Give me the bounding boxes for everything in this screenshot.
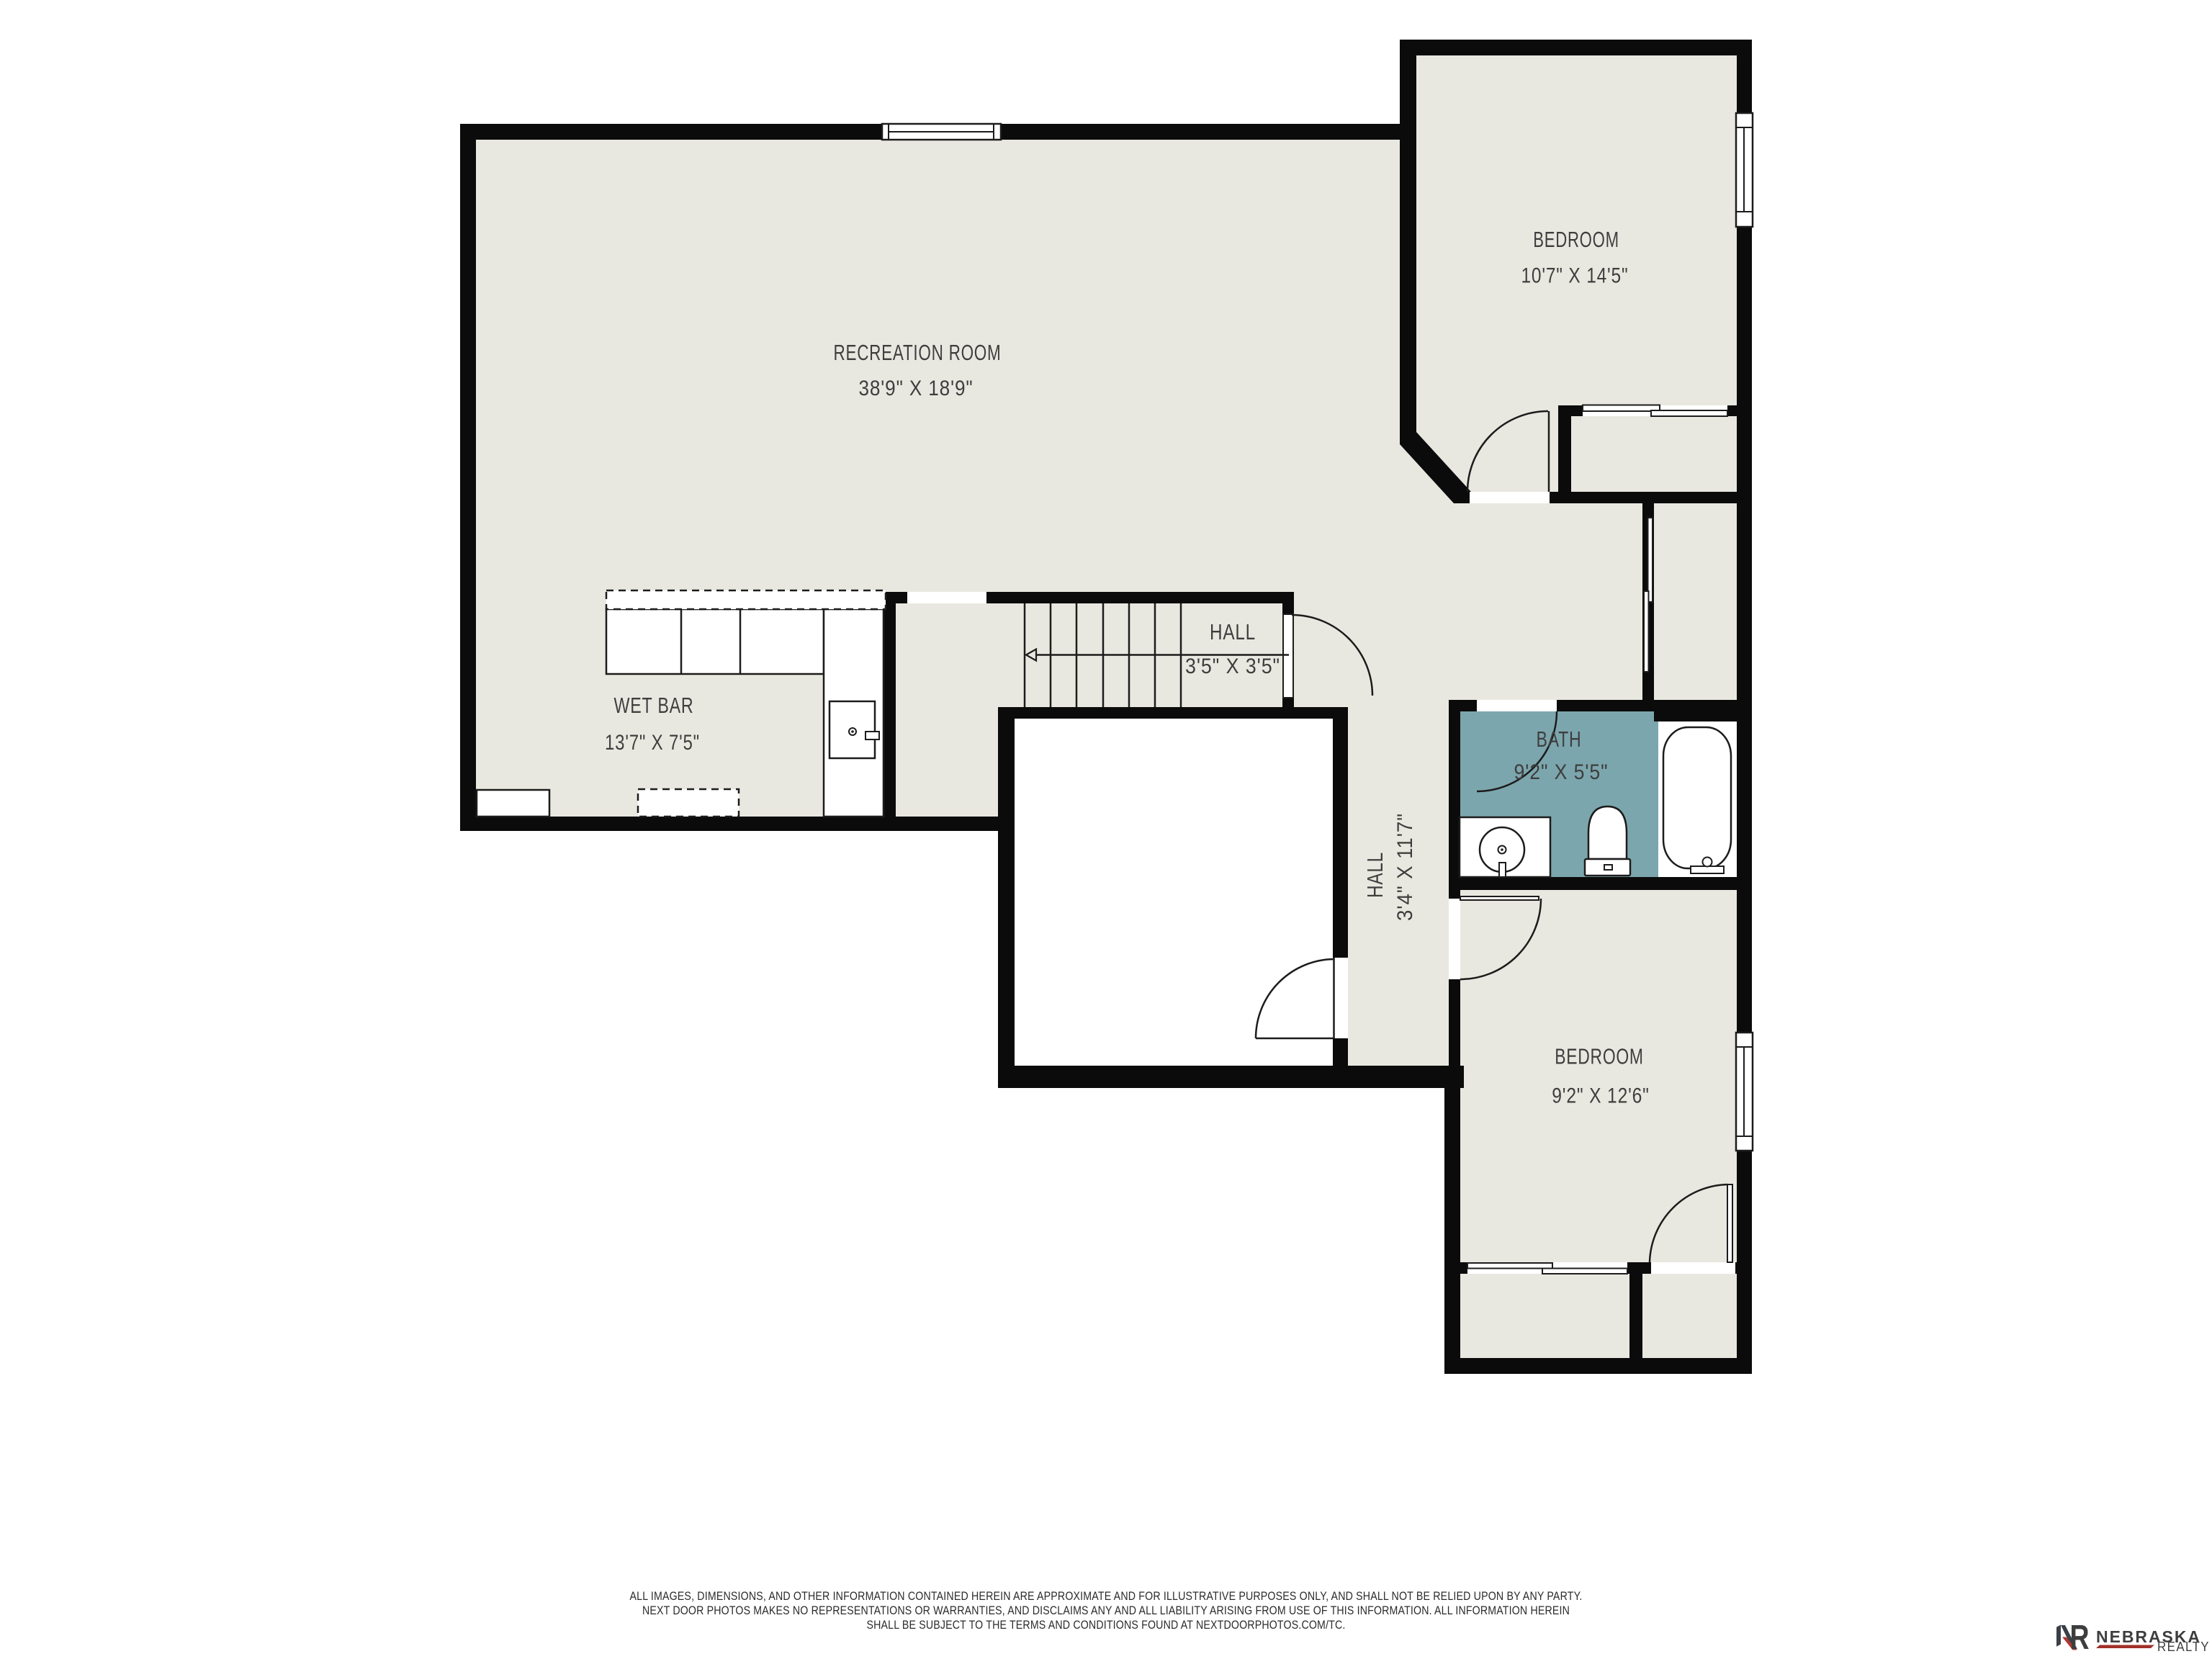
svg-text:10'7" X 14'5": 10'7" X 14'5" xyxy=(1521,264,1629,288)
svg-text:3'5" X 3'5": 3'5" X 3'5" xyxy=(1185,655,1280,678)
svg-text:9'2" X 5'5": 9'2" X 5'5" xyxy=(1514,760,1609,784)
svg-text:BEDROOM: BEDROOM xyxy=(1555,1044,1644,1069)
svg-text:R: R xyxy=(2069,1619,2089,1657)
svg-text:9'2" X 12'6": 9'2" X 12'6" xyxy=(1552,1084,1650,1108)
svg-text:ALL IMAGES, DIMENSIONS, AND OT: ALL IMAGES, DIMENSIONS, AND OTHER INFORM… xyxy=(630,1589,1583,1603)
svg-text:3'4" X 11'7": 3'4" X 11'7" xyxy=(1393,813,1417,921)
svg-text:BATH: BATH xyxy=(1537,727,1582,752)
svg-text:REALTY: REALTY xyxy=(2157,1640,2210,1654)
svg-text:SHALL BE SUBJECT TO THE TERMS: SHALL BE SUBJECT TO THE TERMS AND CONDIT… xyxy=(867,1618,1346,1632)
svg-text:BEDROOM: BEDROOM xyxy=(1533,227,1619,252)
svg-text:NEXT DOOR PHOTOS MAKES NO REPR: NEXT DOOR PHOTOS MAKES NO REPRESENTATION… xyxy=(642,1604,1570,1617)
svg-text:HALL: HALL xyxy=(1362,852,1388,898)
svg-text:RECREATION ROOM: RECREATION ROOM xyxy=(834,340,1002,365)
svg-text:WET BAR: WET BAR xyxy=(614,693,694,718)
svg-text:HALL: HALL xyxy=(1210,619,1256,644)
svg-text:13'7" X 7'5": 13'7" X 7'5" xyxy=(605,731,700,755)
svg-text:38'9" X 18'9": 38'9" X 18'9" xyxy=(859,377,974,400)
